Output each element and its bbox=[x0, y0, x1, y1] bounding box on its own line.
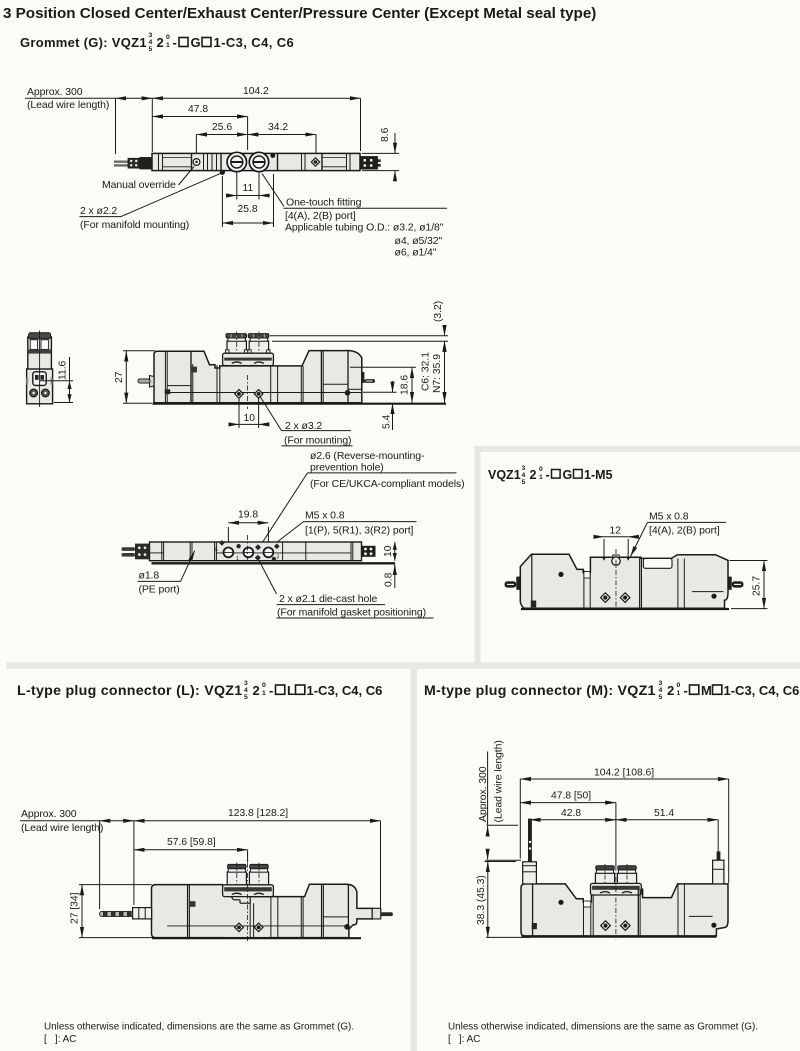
svg-text:1: 1 bbox=[236, 556, 239, 562]
svg-text:1-M5: 1-M5 bbox=[584, 468, 613, 482]
svg-text:104.2: 104.2 bbox=[243, 86, 269, 97]
svg-text:-: - bbox=[546, 468, 550, 482]
svg-text:4: 4 bbox=[149, 39, 153, 46]
svg-text:-: - bbox=[684, 683, 688, 698]
svg-text:M5 x 0.8: M5 x 0.8 bbox=[305, 510, 345, 522]
svg-text:Approx. 300: Approx. 300 bbox=[27, 86, 83, 98]
svg-text:0: 0 bbox=[262, 682, 266, 689]
svg-text:(For CE/UKCA-compliant models): (For CE/UKCA-compliant models) bbox=[310, 478, 465, 490]
svg-text:34.2: 34.2 bbox=[268, 122, 288, 133]
svg-text:4: 4 bbox=[522, 472, 526, 479]
svg-text:2 x ø2.1 die-cast hole: 2 x ø2.1 die-cast hole bbox=[279, 593, 377, 605]
svg-text:1: 1 bbox=[539, 474, 543, 481]
svg-text:25.7: 25.7 bbox=[752, 576, 763, 596]
svg-text:25.8: 25.8 bbox=[238, 204, 258, 215]
svg-text:1-C3, C4, C6: 1-C3, C4, C6 bbox=[214, 35, 295, 50]
svg-text:[ ]: AC: [ ]: AC bbox=[44, 1034, 76, 1045]
svg-text:5: 5 bbox=[244, 694, 248, 701]
svg-text:1: 1 bbox=[262, 690, 266, 697]
svg-text:3: 3 bbox=[522, 465, 526, 472]
svg-text:2: 2 bbox=[530, 468, 537, 482]
svg-text:(PE port): (PE port) bbox=[139, 584, 180, 596]
svg-text:2 x ø3.2: 2 x ø3.2 bbox=[285, 420, 322, 432]
svg-text:3: 3 bbox=[149, 32, 153, 39]
svg-text:27 [34]: 27 [34] bbox=[70, 892, 81, 924]
svg-text:51.4: 51.4 bbox=[654, 808, 674, 819]
svg-text:10: 10 bbox=[383, 545, 394, 557]
svg-text:Approx. 300: Approx. 300 bbox=[21, 808, 77, 820]
svg-text:3: 3 bbox=[659, 680, 663, 687]
svg-text:-: - bbox=[269, 683, 273, 698]
svg-text:-: - bbox=[173, 35, 177, 50]
svg-text:47.8 [50]: 47.8 [50] bbox=[551, 791, 591, 802]
svg-text:1-C3, C4, C6: 1-C3, C4, C6 bbox=[724, 683, 800, 698]
svg-text:prevention hole): prevention hole) bbox=[310, 462, 384, 474]
svg-text:11.6: 11.6 bbox=[58, 360, 69, 380]
svg-text:38.3 (45.3): 38.3 (45.3) bbox=[476, 875, 487, 925]
svg-text:(For mounting): (For mounting) bbox=[284, 435, 351, 447]
svg-text:One-touch fitting: One-touch fitting bbox=[286, 197, 362, 209]
svg-text:ø2.6 (Reverse-mounting-: ø2.6 (Reverse-mounting- bbox=[310, 450, 425, 462]
svg-text:[4(A), 2(B) port]: [4(A), 2(B) port] bbox=[285, 210, 356, 222]
svg-text:1-C3, C4, C6: 1-C3, C4, C6 bbox=[307, 683, 383, 698]
svg-text:3 Position Closed Center/Exhau: 3 Position Closed Center/Exhaust Center/… bbox=[3, 5, 596, 22]
svg-text:Manual override: Manual override bbox=[102, 179, 176, 191]
svg-text:(Lead wire length): (Lead wire length) bbox=[21, 822, 103, 834]
svg-text:104.2 [108.6]: 104.2 [108.6] bbox=[594, 768, 654, 779]
svg-text:10: 10 bbox=[244, 413, 256, 424]
svg-text:ø6, ø1/4": ø6, ø1/4" bbox=[395, 247, 437, 259]
svg-text:VQZ1: VQZ1 bbox=[488, 468, 521, 482]
svg-text:M: M bbox=[701, 683, 712, 698]
svg-text:(Lead wire length): (Lead wire length) bbox=[27, 99, 109, 111]
svg-text:4: 4 bbox=[659, 687, 663, 694]
svg-text:(For manifold mounting): (For manifold mounting) bbox=[80, 219, 189, 231]
svg-text:ø1.8: ø1.8 bbox=[139, 570, 160, 582]
svg-text:2 x ø2.2: 2 x ø2.2 bbox=[80, 205, 117, 217]
svg-text:1: 1 bbox=[677, 690, 681, 697]
svg-text:3: 3 bbox=[277, 555, 280, 561]
svg-text:L: L bbox=[287, 683, 295, 698]
svg-text:2: 2 bbox=[253, 683, 260, 698]
svg-text:(Lead wire length): (Lead wire length) bbox=[493, 740, 505, 822]
svg-text:0: 0 bbox=[539, 466, 543, 473]
svg-text:[4(A), 2(B) port]: [4(A), 2(B) port] bbox=[649, 525, 720, 537]
svg-text:5: 5 bbox=[522, 479, 526, 486]
svg-text:123.8 [128.2]: 123.8 [128.2] bbox=[228, 808, 288, 819]
svg-text:57.6 [59.8]: 57.6 [59.8] bbox=[167, 837, 216, 848]
svg-text:18.6: 18.6 bbox=[400, 375, 411, 395]
svg-text:ø4, ø5/32": ø4, ø5/32" bbox=[395, 235, 443, 247]
svg-text:5: 5 bbox=[215, 548, 218, 554]
svg-text:42.8: 42.8 bbox=[561, 808, 581, 819]
svg-text:L-type plug connector (L): VQZ: L-type plug connector (L): VQZ1 bbox=[17, 683, 242, 699]
svg-text:8.6: 8.6 bbox=[380, 127, 391, 142]
svg-text:0.8: 0.8 bbox=[384, 572, 395, 587]
svg-text:G: G bbox=[563, 468, 573, 482]
svg-text:19.8: 19.8 bbox=[238, 510, 258, 521]
svg-text:3: 3 bbox=[244, 680, 248, 687]
svg-text:M5 x 0.8: M5 x 0.8 bbox=[649, 511, 689, 523]
svg-text:Unless otherwise indicated, di: Unless otherwise indicated, dimensions a… bbox=[44, 1022, 354, 1033]
svg-text:(3.2): (3.2) bbox=[433, 301, 444, 322]
svg-text:12: 12 bbox=[610, 526, 622, 537]
svg-text:N7: 35.9: N7: 35.9 bbox=[432, 354, 443, 393]
svg-text:M-type plug connector (M): VQZ: M-type plug connector (M): VQZ1 bbox=[424, 683, 656, 699]
svg-text:Applicable tubing O.D.: ø3.2,: Applicable tubing O.D.: ø3.2, ø1/8" bbox=[285, 222, 444, 234]
svg-text:(For manifold gasket positioni: (For manifold gasket positioning) bbox=[277, 607, 426, 619]
svg-text:25.6: 25.6 bbox=[212, 122, 232, 133]
svg-text:Unless otherwise indicated, di: Unless otherwise indicated, dimensions a… bbox=[448, 1022, 758, 1033]
svg-text:0: 0 bbox=[677, 682, 681, 689]
svg-text:G: G bbox=[191, 35, 201, 50]
svg-text:[1(P), 5(R1), 3(R2) port]: [1(P), 5(R1), 3(R2) port] bbox=[305, 525, 414, 537]
svg-text:[ ]: AC: [ ]: AC bbox=[448, 1034, 480, 1045]
svg-text:C6: 32.1: C6: 32.1 bbox=[421, 352, 432, 391]
svg-text:Grommet (G): VQZ1: Grommet (G): VQZ1 bbox=[20, 35, 147, 50]
svg-text:4: 4 bbox=[244, 687, 248, 694]
svg-text:2: 2 bbox=[667, 683, 674, 698]
svg-text:2: 2 bbox=[157, 35, 164, 50]
svg-text:11: 11 bbox=[243, 183, 254, 194]
svg-text:5: 5 bbox=[149, 46, 153, 53]
svg-text:47.8: 47.8 bbox=[188, 104, 208, 115]
svg-text:5.4: 5.4 bbox=[382, 414, 393, 429]
svg-text:0: 0 bbox=[166, 34, 170, 41]
svg-text:27: 27 bbox=[114, 371, 125, 383]
svg-text:5: 5 bbox=[659, 694, 663, 701]
svg-text:1: 1 bbox=[166, 42, 170, 49]
